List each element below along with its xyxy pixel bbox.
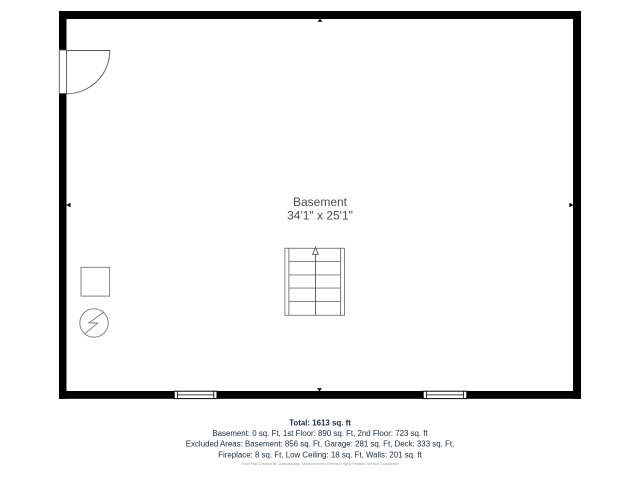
svg-text:34'1" x 25'1": 34'1" x 25'1" — [287, 208, 353, 222]
svg-text:Basement: 0 sq. Ft, 1st Floor:: Basement: 0 sq. Ft, 1st Floor: 890 sq. F… — [212, 429, 428, 438]
svg-text:Excluded Areas: Basement: 856: Excluded Areas: Basement: 856 sq. Ft, Ga… — [186, 440, 454, 449]
svg-text:Fireplace: 8 sq. Ft, Low Ceili: Fireplace: 8 sq. Ft, Low Ceiling: 18 sq.… — [218, 450, 422, 459]
svg-text:Basement: Basement — [293, 195, 348, 209]
svg-text:Total: 1613 sq. ft: Total: 1613 sq. ft — [289, 419, 351, 428]
svg-text:Floor Plan Created By Cubicasa: Floor Plan Created By Cubicasa App. Meas… — [242, 462, 399, 466]
